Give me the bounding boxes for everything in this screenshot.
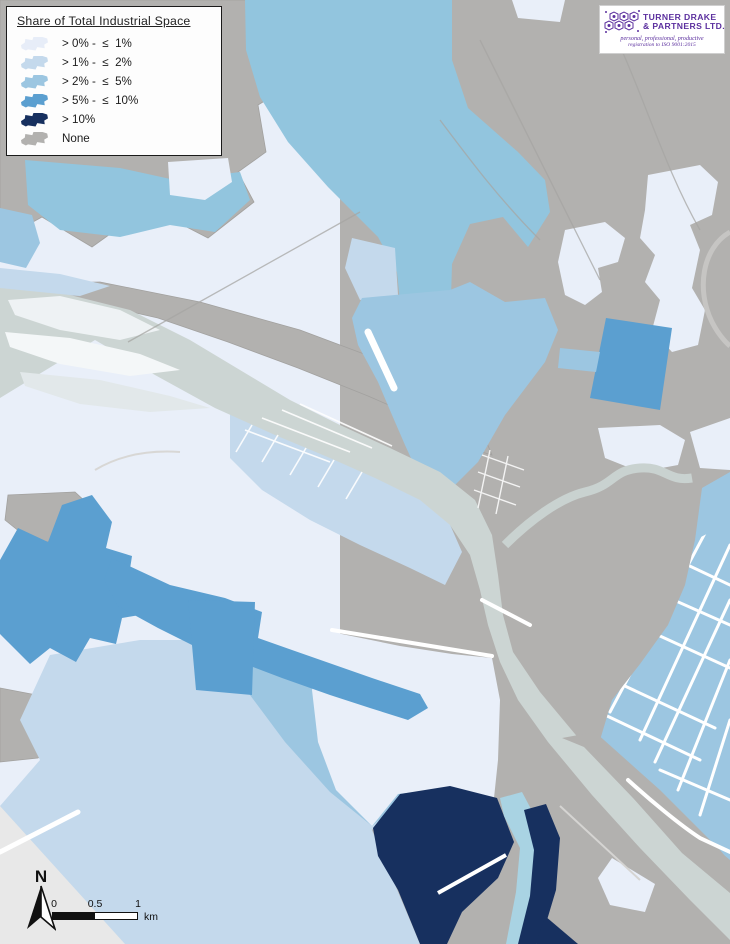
legend-label: > 1% - ≤ 2% xyxy=(62,56,132,69)
legend-row: > 1% - ≤ 2% xyxy=(15,53,213,72)
scale-unit: km xyxy=(144,911,158,923)
legend-swatch-0-1 xyxy=(21,37,48,51)
legend-swatch-5-10 xyxy=(21,94,48,108)
legend-swatch-gt10 xyxy=(21,113,48,127)
company-logo: TURNER DRAKE & PARTNERS LTD. personal, p… xyxy=(599,5,725,54)
scale-bar: 0 0.5 1 km xyxy=(52,898,172,920)
scale-label-0: 0 xyxy=(51,898,57,910)
legend-swatch-2-5 xyxy=(21,75,48,89)
logo-registration: registration to ISO 9001:2015 xyxy=(604,42,720,48)
legend-label: > 5% - ≤ 10% xyxy=(62,94,138,107)
legend-row: > 10% xyxy=(15,110,213,129)
north-label: N xyxy=(24,868,58,885)
scale-labels: 0 0.5 1 xyxy=(52,898,172,910)
legend: Share of Total Industrial Space > 0% - ≤… xyxy=(6,6,222,156)
logo-hex-mark xyxy=(604,9,640,35)
legend-swatch-1-2 xyxy=(21,56,48,70)
legend-swatch-none xyxy=(21,132,48,146)
legend-label: > 10% xyxy=(62,113,95,126)
legend-row: > 5% - ≤ 10% xyxy=(15,91,213,110)
scale-bar-graphic xyxy=(52,912,138,920)
legend-row: > 0% - ≤ 1% xyxy=(15,34,213,53)
scale-label-05: 0.5 xyxy=(88,898,103,910)
legend-row: > 2% - ≤ 5% xyxy=(15,72,213,91)
legend-row: None xyxy=(15,129,213,148)
legend-label: > 2% - ≤ 5% xyxy=(62,75,132,88)
legend-title: Share of Total Industrial Space xyxy=(17,14,213,28)
legend-label: None xyxy=(62,132,90,145)
scale-label-1: 1 xyxy=(135,898,141,910)
logo-name-line2: & PARTNERS LTD. xyxy=(643,22,725,31)
map-canvas: Share of Total Industrial Space > 0% - ≤… xyxy=(0,0,730,944)
legend-label: > 0% - ≤ 1% xyxy=(62,37,132,50)
